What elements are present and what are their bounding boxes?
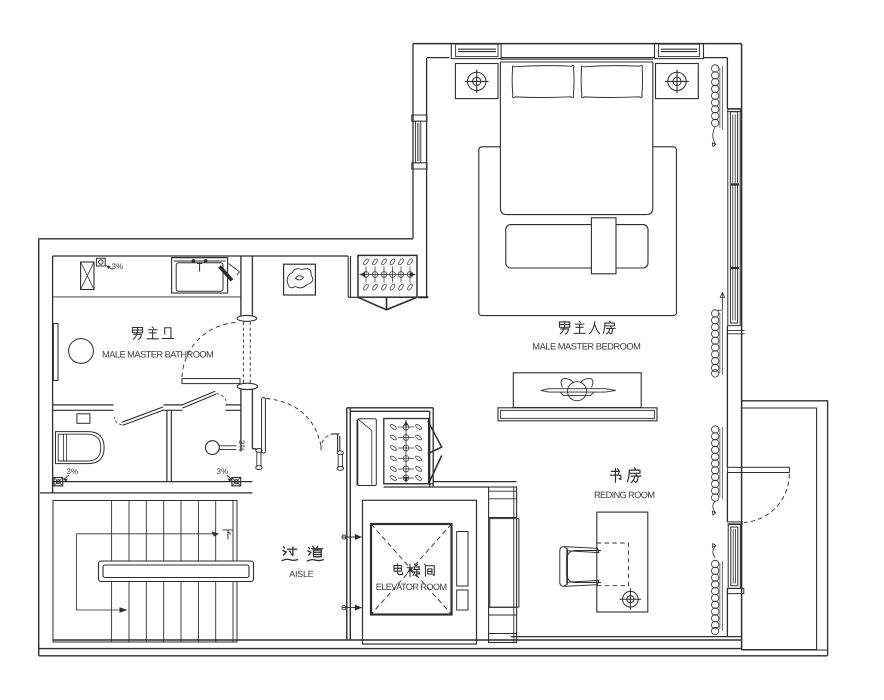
svg-text:3%: 3% bbox=[112, 262, 124, 271]
svg-text:3%: 3% bbox=[67, 467, 79, 476]
svg-text:MALE MASTER BEDROOM: MALE MASTER BEDROOM bbox=[532, 342, 641, 352]
svg-text:REDING ROOM: REDING ROOM bbox=[594, 490, 655, 500]
svg-text:ELEVATOR ROOM: ELEVATOR ROOM bbox=[376, 582, 447, 592]
svg-text:MALE MASTER BATHROOM: MALE MASTER BATHROOM bbox=[102, 350, 214, 360]
svg-text:AISLE: AISLE bbox=[289, 569, 313, 579]
svg-text:3%: 3% bbox=[237, 440, 246, 452]
svg-text:3%: 3% bbox=[217, 467, 229, 476]
